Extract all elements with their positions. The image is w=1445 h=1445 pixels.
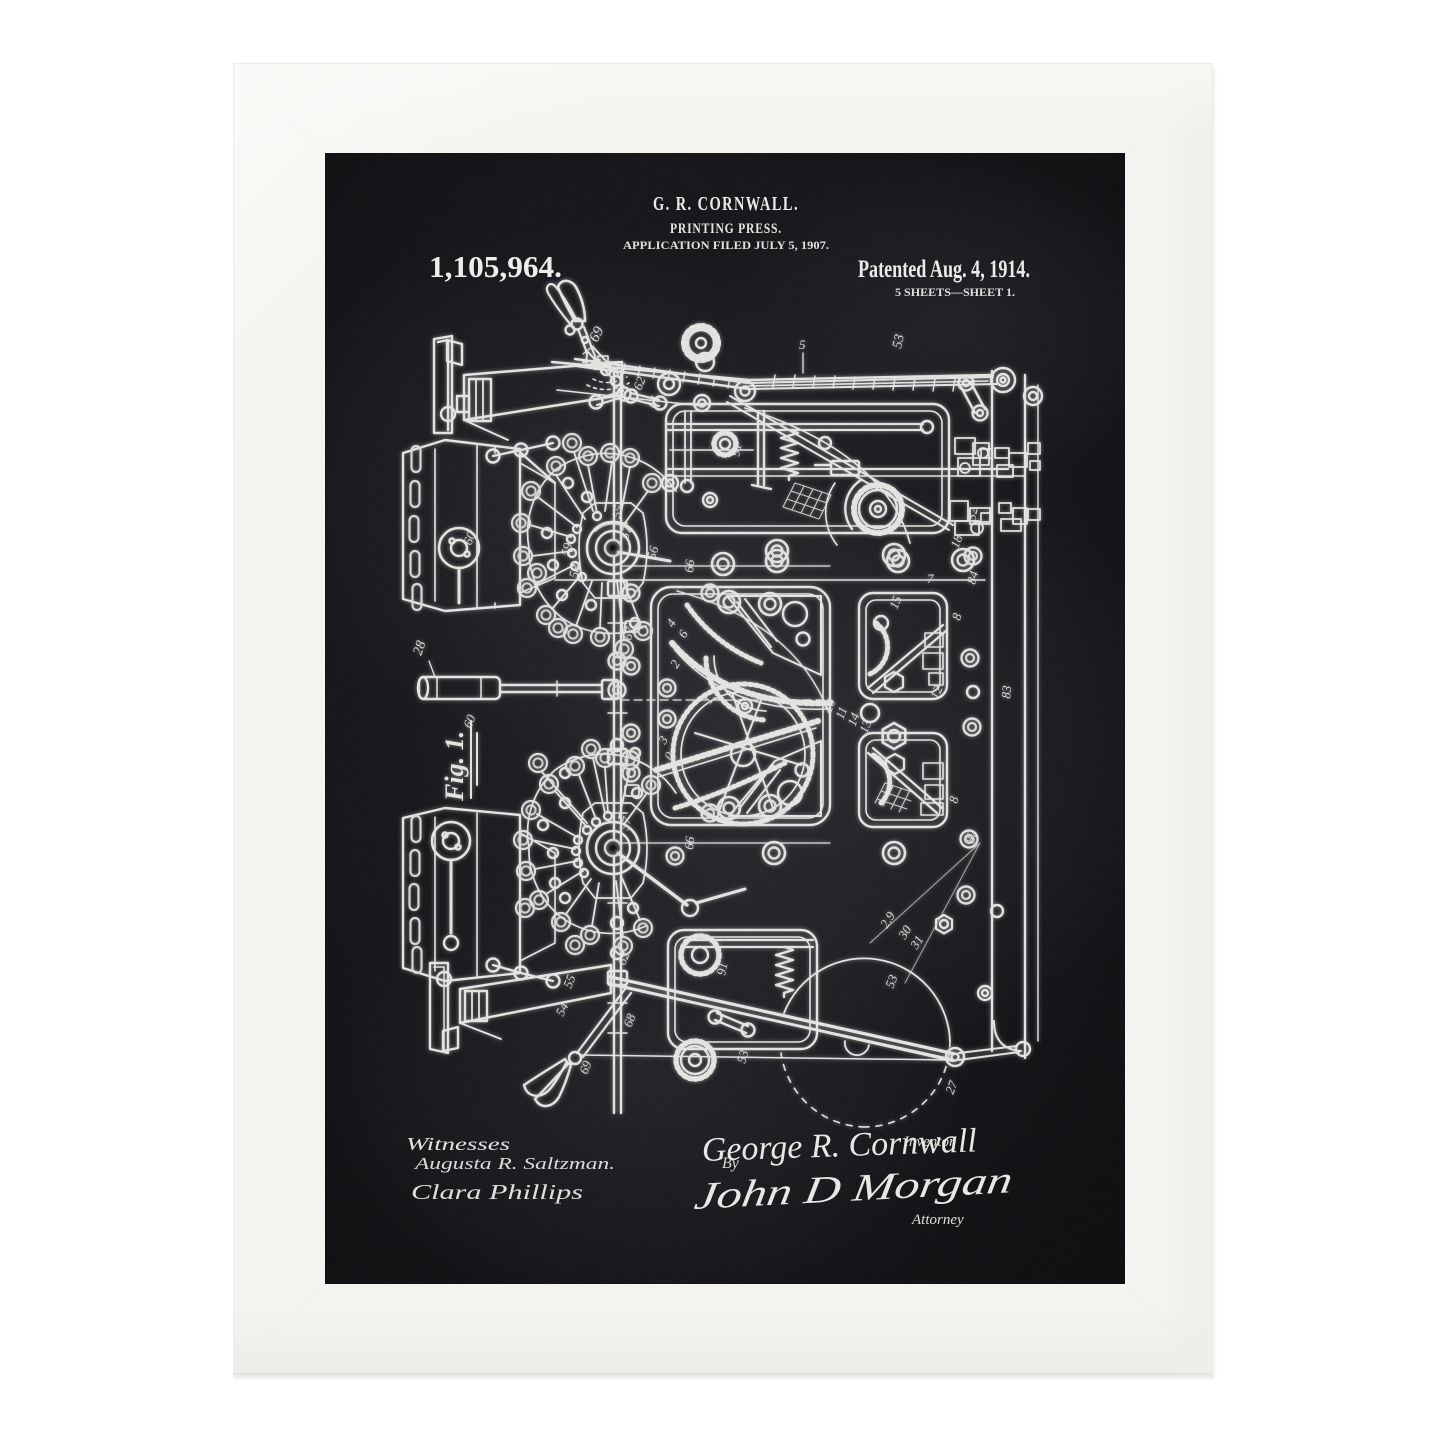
svg-text:G. R. CORNWALL.: G. R. CORNWALL. <box>653 193 799 215</box>
svg-text:Witnesses: Witnesses <box>406 1134 510 1154</box>
svg-text:PRINTING PRESS.: PRINTING PRESS. <box>670 221 782 237</box>
svg-text:Attorney: Attorney <box>911 1212 964 1228</box>
svg-text:Patented Aug. 4, 1914.: Patented Aug. 4, 1914. <box>858 256 1030 283</box>
svg-text:Clara Phillips: Clara Phillips <box>411 1180 583 1204</box>
svg-text:1,105,964.: 1,105,964. <box>429 249 562 284</box>
svg-text:Augusta R. Saltzman.: Augusta R. Saltzman. <box>414 1154 615 1173</box>
svg-text:By: By <box>722 1155 740 1172</box>
svg-text:Inventor: Inventor <box>903 1134 955 1150</box>
svg-text:5 SHEETS—SHEET 1.: 5 SHEETS—SHEET 1. <box>895 287 1015 299</box>
